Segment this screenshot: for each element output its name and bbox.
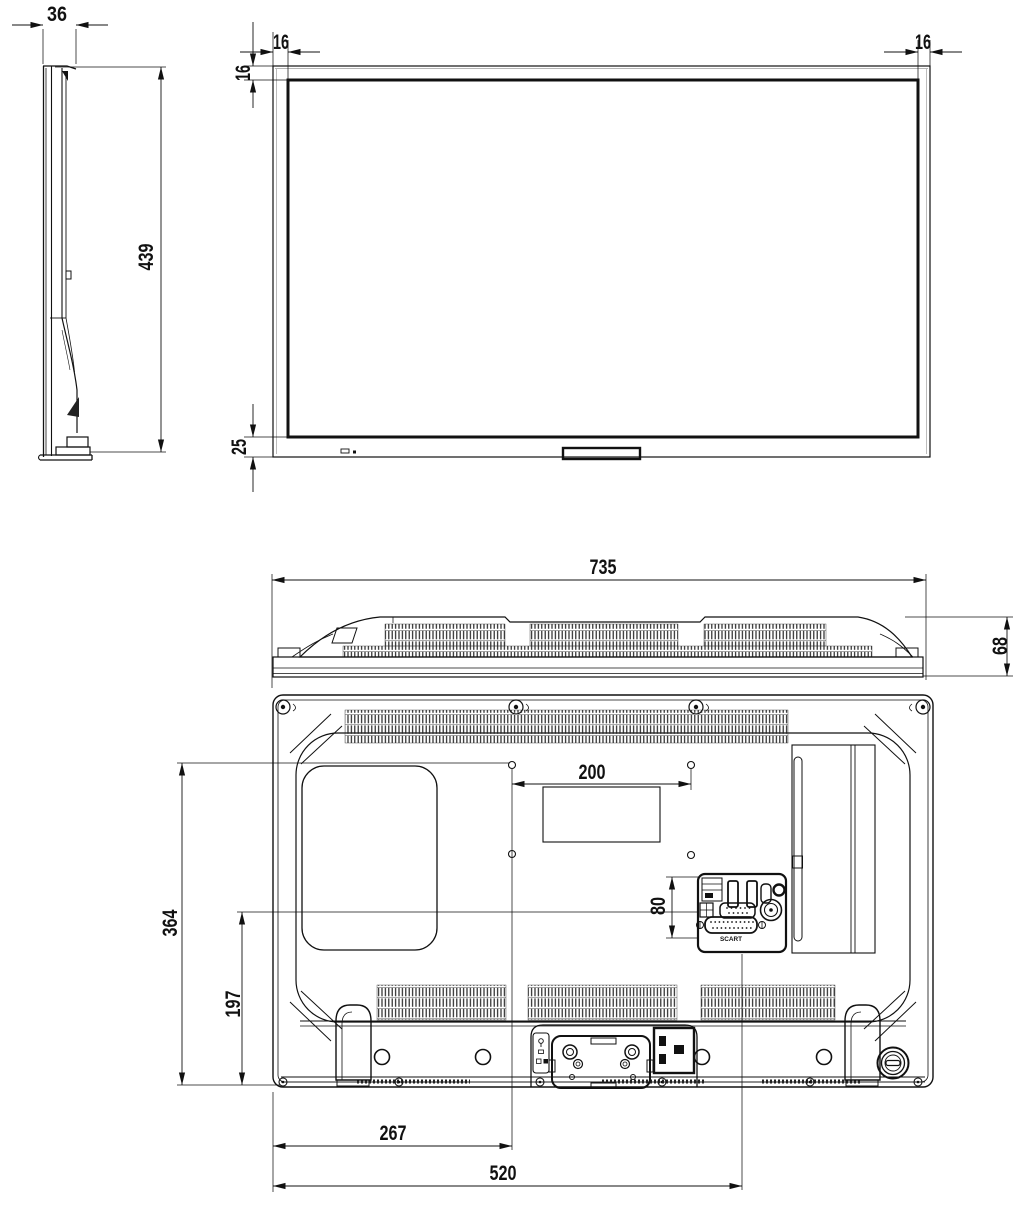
dim-label-height-vesa: 364 bbox=[159, 909, 182, 936]
dim-label-left-to-vesa: 267 bbox=[380, 1122, 407, 1145]
rear-bottom-vent-2 bbox=[528, 985, 677, 1020]
top-vent-band-2 bbox=[530, 624, 678, 646]
dim-label-side-depth: 36 bbox=[47, 3, 67, 26]
scart-label: SCART bbox=[720, 936, 742, 943]
dim-label-left-to-io-center: 520 bbox=[490, 1162, 517, 1185]
top-vent-band-long bbox=[343, 646, 872, 657]
rear-top-vent bbox=[345, 710, 788, 743]
dim-label-side-height: 439 bbox=[135, 244, 158, 271]
top-vent-band-3 bbox=[704, 624, 826, 646]
rear-bottom-vent-3 bbox=[701, 985, 835, 1020]
dim-label-top-depth: 68 bbox=[989, 637, 1012, 655]
drawing-canvas: 36 439 16 16 bbox=[0, 0, 1024, 1214]
dim-label-vesa-width: 200 bbox=[579, 761, 606, 784]
rear-bottom-vent-1 bbox=[377, 985, 506, 1020]
dim-label-front-bezel-bottom: 25 bbox=[228, 439, 251, 455]
dim-label-io-panel-height: 80 bbox=[647, 897, 670, 915]
dim-label-top-width: 735 bbox=[590, 556, 617, 579]
dim-label-front-bezel-right: 16 bbox=[915, 31, 931, 54]
dim-label-front-bezel-top: 16 bbox=[232, 65, 255, 81]
top-vent-band-1 bbox=[385, 624, 505, 646]
tv-dimension-drawing: 36 439 16 16 bbox=[0, 0, 1024, 1214]
dim-label-front-bezel-left: 16 bbox=[273, 31, 289, 54]
